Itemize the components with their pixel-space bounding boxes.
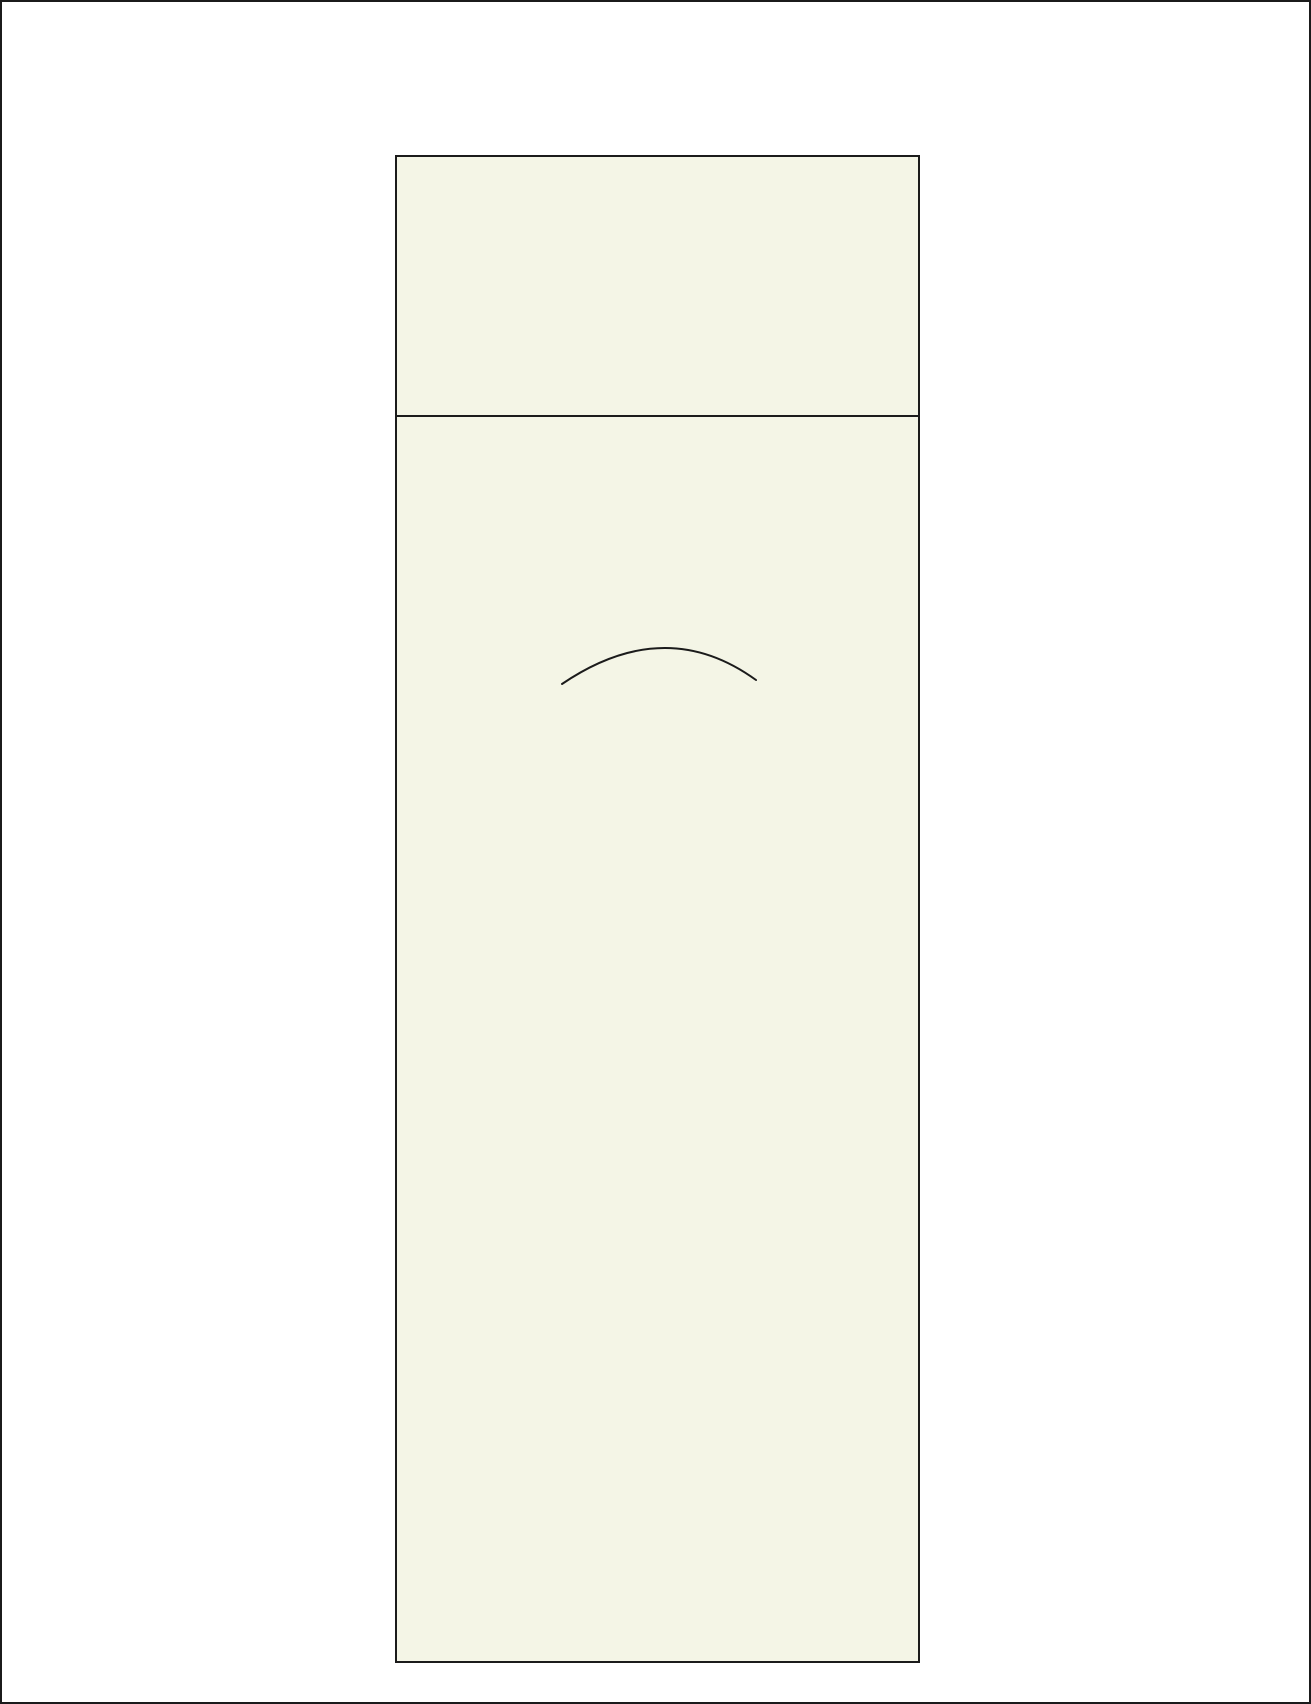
panel	[395, 155, 920, 1663]
panel-header	[397, 157, 918, 417]
panel-body	[397, 417, 918, 1661]
page-sheet	[0, 0, 1311, 1704]
